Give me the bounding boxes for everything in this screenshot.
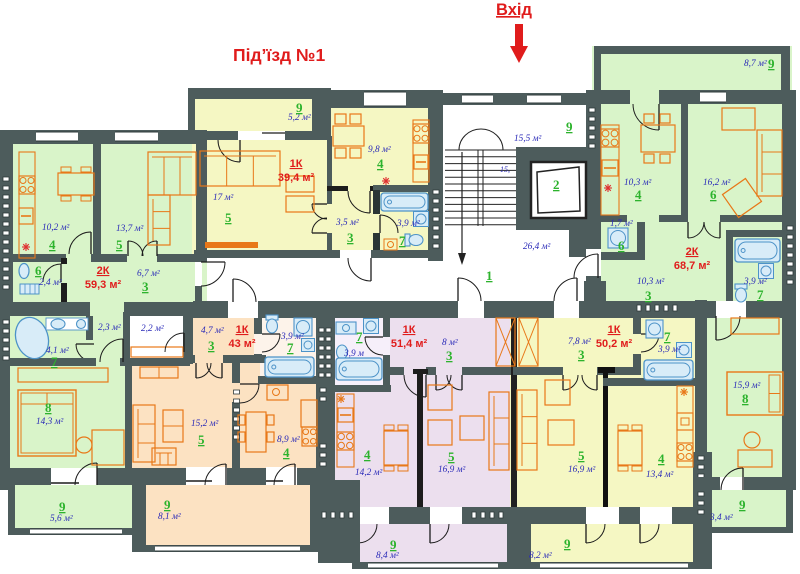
svg-text:7: 7 — [757, 287, 764, 302]
svg-text:4: 4 — [377, 156, 384, 171]
svg-text:3: 3 — [208, 338, 215, 353]
svg-text:8,7 м²: 8,7 м² — [744, 59, 767, 69]
svg-text:Під’їзд №1: Під’їзд №1 — [233, 45, 326, 65]
svg-text:6: 6 — [618, 238, 625, 253]
svg-text:7: 7 — [399, 233, 406, 248]
svg-text:15,9 м²: 15,9 м² — [733, 381, 761, 391]
svg-text:2К: 2К — [97, 265, 110, 277]
svg-text:5: 5 — [198, 432, 205, 447]
svg-text:1К: 1К — [403, 324, 416, 336]
svg-text:9: 9 — [566, 119, 573, 134]
svg-text:59,3 м²: 59,3 м² — [85, 279, 122, 291]
svg-text:8,1 м²: 8,1 м² — [158, 512, 181, 522]
svg-text:3,9 м²: 3,9 м² — [396, 219, 420, 229]
svg-text:7: 7 — [51, 354, 58, 369]
svg-text:8,2 м²: 8,2 м² — [529, 551, 552, 561]
svg-text:9,8 м²: 9,8 м² — [368, 145, 391, 155]
svg-text:3: 3 — [578, 347, 585, 362]
svg-text:9: 9 — [739, 497, 746, 512]
svg-text:6,7 м²: 6,7 м² — [137, 269, 160, 279]
svg-text:1К: 1К — [290, 158, 303, 170]
svg-text:4: 4 — [658, 451, 665, 466]
svg-text:8 м²: 8 м² — [442, 338, 458, 348]
svg-text:1,7 м²: 1,7 м² — [610, 219, 633, 229]
svg-text:3,9 м: 3,9 м — [343, 349, 364, 359]
svg-text:6: 6 — [35, 263, 42, 278]
svg-text:9: 9 — [768, 56, 775, 71]
svg-text:2,3 м²: 2,3 м² — [98, 323, 121, 333]
svg-text:16,2 м²: 16,2 м² — [703, 178, 731, 188]
svg-text:5: 5 — [225, 210, 232, 225]
svg-text:9: 9 — [164, 497, 171, 512]
svg-text:6: 6 — [710, 187, 717, 202]
svg-text:5: 5 — [578, 448, 585, 463]
svg-text:3,5 м²: 3,5 м² — [335, 218, 359, 228]
svg-text:5,6 м²: 5,6 м² — [50, 514, 73, 524]
svg-text:4: 4 — [49, 237, 56, 252]
svg-text:26,4 м²: 26,4 м² — [523, 242, 551, 252]
svg-text:2,4 м²: 2,4 м² — [39, 278, 62, 288]
svg-text:5: 5 — [448, 449, 455, 464]
svg-text:14,3 м²: 14,3 м² — [36, 417, 64, 427]
svg-text:13,7 м²: 13,7 м² — [116, 224, 144, 234]
svg-text:15,: 15, — [500, 165, 510, 174]
svg-text:3,9 м²: 3,9 м² — [657, 345, 681, 355]
svg-text:9: 9 — [59, 499, 66, 514]
svg-text:9: 9 — [296, 100, 303, 115]
svg-text:8: 8 — [45, 400, 52, 415]
svg-text:3,9 м²: 3,9 м² — [743, 277, 767, 287]
svg-text:2К: 2К — [686, 246, 699, 258]
svg-text:8: 8 — [742, 391, 749, 406]
svg-text:17 м²: 17 м² — [213, 193, 234, 203]
svg-text:16,9 м²: 16,9 м² — [568, 465, 596, 475]
svg-text:2: 2 — [553, 177, 560, 192]
svg-text:2,2 м²: 2,2 м² — [141, 324, 164, 334]
svg-text:10,2 м²: 10,2 м² — [42, 223, 70, 233]
svg-text:3: 3 — [347, 230, 354, 245]
svg-text:4: 4 — [635, 187, 642, 202]
svg-text:15,2 м²: 15,2 м² — [191, 419, 219, 429]
svg-text:5: 5 — [116, 237, 123, 252]
svg-text:7: 7 — [356, 329, 363, 344]
svg-text:7: 7 — [664, 329, 671, 344]
svg-text:7: 7 — [287, 340, 294, 355]
svg-text:68,7 м²: 68,7 м² — [674, 260, 711, 272]
svg-text:51,4 м²: 51,4 м² — [391, 338, 428, 350]
svg-text:43 м²: 43 м² — [228, 338, 255, 350]
svg-text:15,5 м²: 15,5 м² — [514, 134, 542, 144]
svg-text:1К: 1К — [236, 324, 249, 336]
svg-text:Вхід: Вхід — [496, 1, 532, 19]
svg-text:16,9 м²: 16,9 м² — [438, 465, 466, 475]
svg-text:4,7 м²: 4,7 м² — [201, 326, 224, 336]
svg-text:13,4 м²: 13,4 м² — [646, 470, 674, 480]
svg-text:3: 3 — [142, 279, 149, 294]
svg-text:10,3 м²: 10,3 м² — [637, 277, 665, 287]
svg-text:14,2 м²: 14,2 м² — [355, 468, 383, 478]
svg-text:9: 9 — [390, 537, 397, 552]
svg-text:4: 4 — [283, 445, 290, 460]
svg-text:7,8 м²: 7,8 м² — [568, 337, 591, 347]
svg-text:39,4 м²: 39,4 м² — [278, 172, 315, 184]
svg-text:8,9 м²: 8,9 м² — [277, 435, 300, 445]
svg-text:1: 1 — [486, 268, 493, 283]
svg-text:3: 3 — [645, 288, 652, 303]
svg-text:50,2 м²: 50,2 м² — [596, 338, 633, 350]
svg-text:4: 4 — [364, 447, 371, 462]
svg-text:8,4 м²: 8,4 м² — [376, 551, 399, 561]
svg-text:3: 3 — [446, 348, 453, 363]
svg-text:3,4 м²: 3,4 м² — [709, 513, 733, 523]
svg-text:9: 9 — [564, 536, 571, 551]
svg-text:1К: 1К — [608, 324, 621, 336]
